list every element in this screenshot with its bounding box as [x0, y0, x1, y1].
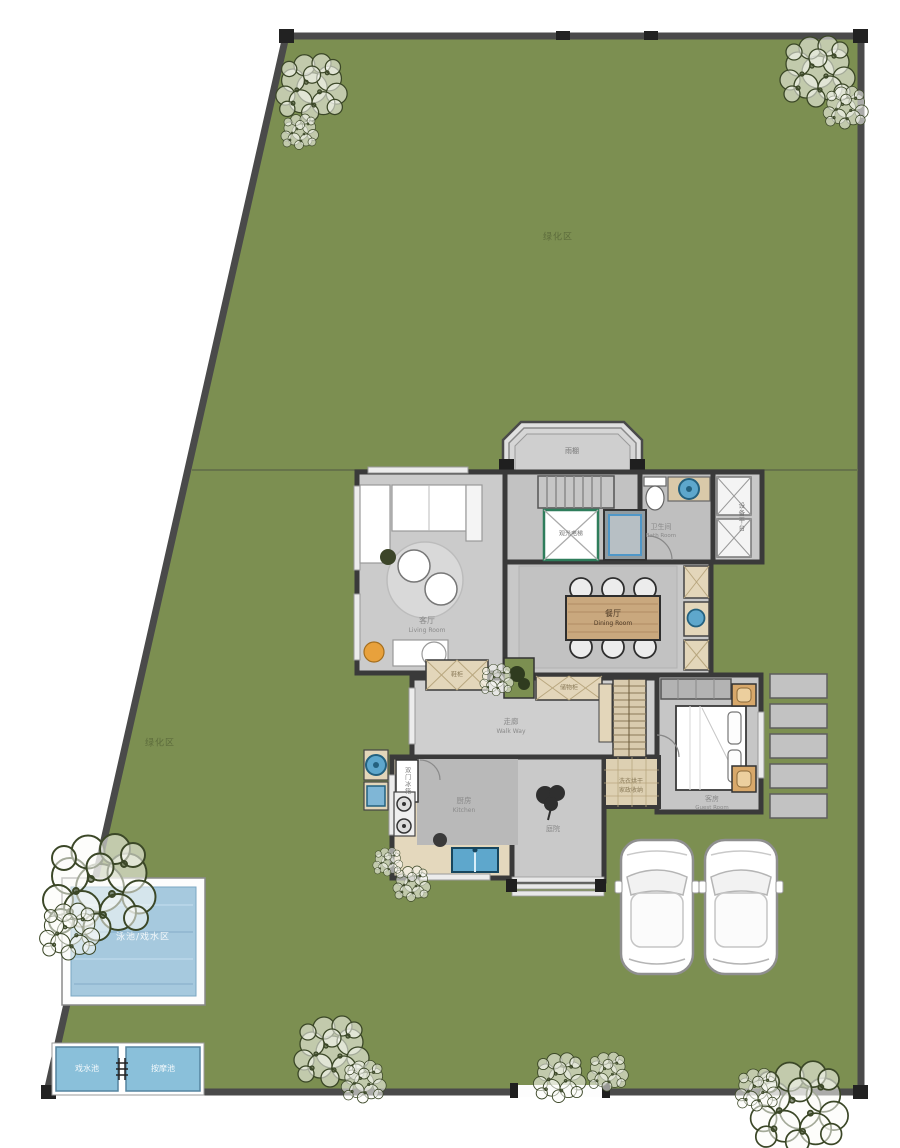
side-table — [364, 642, 384, 662]
toilet — [644, 477, 666, 510]
sink-basin — [688, 610, 705, 627]
elevator-shaft — [604, 510, 646, 560]
car-1 — [615, 840, 699, 974]
dining-cabinets — [684, 566, 709, 670]
floor-plan-canvas — [0, 0, 900, 1148]
plant — [380, 549, 396, 565]
floor-plan: 绿化区 绿化区 雨棚 客厅 Living Room 观光电梯 卫生间 Bath … — [0, 0, 900, 1148]
shoe-cabinet — [426, 660, 488, 690]
armchair — [425, 573, 457, 605]
stepping-stones — [770, 674, 827, 818]
hall-cabinet — [536, 676, 602, 700]
dining-set — [519, 566, 677, 668]
room-courtyard — [512, 757, 604, 881]
pillow — [728, 712, 741, 744]
armchair — [398, 550, 430, 582]
entrance-porch — [499, 422, 645, 471]
staircase — [538, 476, 614, 508]
room-laundry — [604, 757, 659, 807]
elevator — [544, 510, 598, 560]
bath-vanity — [668, 477, 710, 501]
pot — [433, 833, 447, 847]
splash-tanks — [52, 1043, 204, 1095]
dining-table — [566, 596, 660, 640]
outdoor-wash — [364, 750, 388, 810]
car-2 — [699, 840, 783, 974]
laundry-sink — [367, 786, 385, 806]
